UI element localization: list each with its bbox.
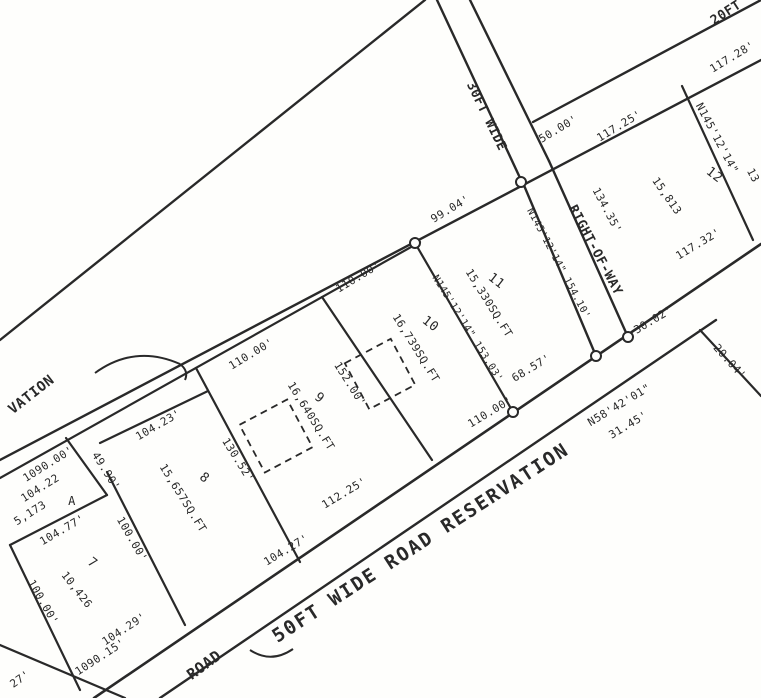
monument-circle bbox=[516, 177, 526, 187]
dim-117-28: 117.28' bbox=[707, 39, 756, 76]
dim-27-partial: 27' bbox=[8, 668, 33, 691]
dim-99-04: 99.04' bbox=[429, 192, 472, 225]
survey-plat-map: 20FT117.28'N145'12'14"131215,813117.32'5… bbox=[0, 0, 761, 698]
lot-number-7: 7 bbox=[84, 555, 100, 572]
dim-20-04: 20.04' bbox=[710, 341, 748, 381]
dim-lot12-west-partial: 13 bbox=[744, 166, 761, 185]
dim-110-00-lot9-top: 110.00' bbox=[226, 336, 275, 373]
lot12-west-edge bbox=[682, 86, 753, 240]
lot-area-7: 10,426 bbox=[58, 569, 95, 611]
label-20ft-road: 20FT bbox=[708, 0, 744, 28]
lot-area-12: 15,813 bbox=[649, 175, 684, 217]
label-row-upper: 30FT WIDE bbox=[463, 79, 509, 153]
dim-112-25: 112.25' bbox=[319, 475, 368, 512]
dim-100-00-lot7-left: 100.00' bbox=[25, 577, 61, 627]
dim-130-52: 130.52' bbox=[219, 436, 256, 485]
monument-circle bbox=[508, 407, 518, 417]
arc-hook bbox=[180, 364, 186, 380]
dim-49-90: 49.90' bbox=[89, 450, 123, 493]
dim-30-02: 30.02' bbox=[632, 303, 675, 336]
dim-104-23: 104.23' bbox=[133, 407, 183, 443]
lot-number-12: 12 bbox=[703, 164, 725, 186]
road-junction-curve bbox=[250, 649, 293, 657]
label-vation: VATION bbox=[6, 372, 58, 418]
dim-110-00-lot10-top: 110.00' bbox=[333, 259, 382, 296]
lot-area-a: 5,173 bbox=[12, 498, 49, 528]
dim-1090-15: 1090.15' bbox=[73, 636, 128, 678]
lot-area-9: 16,640SQ.FT bbox=[285, 379, 338, 452]
label-50ft-reservation: 50FT WIDE ROAD RESERVATION bbox=[268, 439, 573, 648]
lot9-lot10-edge bbox=[322, 297, 432, 460]
lot-number-9: 9 bbox=[311, 390, 327, 407]
monument-circle bbox=[410, 238, 420, 248]
frontage-outer-line bbox=[0, 60, 761, 460]
lot-number-10: 10 bbox=[419, 313, 441, 335]
label-road: ROAD bbox=[183, 646, 224, 683]
dim-152-00: 152.00' bbox=[331, 360, 368, 409]
monument-circle bbox=[623, 332, 633, 342]
bearing-lot11-west: N145'12'14" 153.03' bbox=[430, 273, 505, 384]
lot-number-a: A bbox=[68, 494, 76, 508]
dim-117-32: 117.32' bbox=[673, 226, 722, 263]
lot-area-8: 15,657SQ.FT bbox=[157, 461, 210, 534]
lot-number-8: 8 bbox=[196, 470, 212, 487]
dim-134-35: 134.35' bbox=[590, 185, 625, 235]
dim-68-57: 68.57' bbox=[510, 351, 553, 384]
reservation-arc bbox=[95, 356, 180, 373]
upper-boundary-line bbox=[0, 0, 425, 340]
monument-circle bbox=[591, 351, 601, 361]
